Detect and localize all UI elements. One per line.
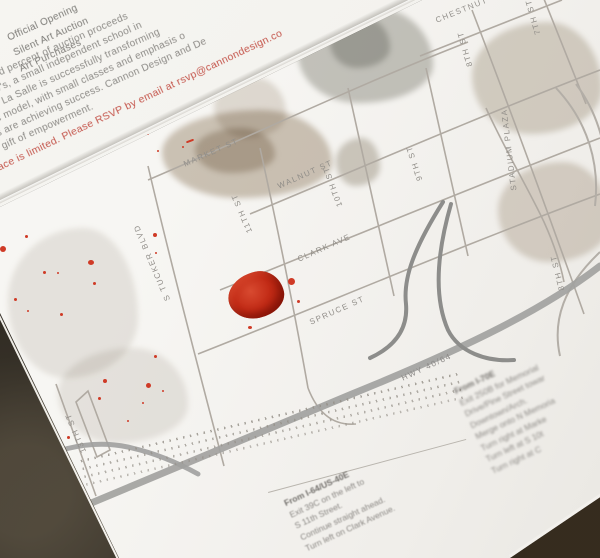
ink-splatter-dot bbox=[248, 326, 252, 329]
ink-splatter-dot bbox=[27, 310, 29, 312]
ink-splatter-dot bbox=[162, 390, 164, 392]
ink-splatter-dot bbox=[127, 420, 129, 422]
ink-splatter-dot bbox=[14, 298, 17, 301]
photo-of-letterpress-map-card: Official Opening Silent Art Auction Art … bbox=[0, 0, 600, 558]
ink-splatter-dot bbox=[0, 246, 6, 252]
ink-splatter-dot bbox=[288, 278, 295, 285]
ink-splatter-dot bbox=[103, 379, 107, 383]
ink-splatter-dot bbox=[57, 272, 59, 274]
ink-splatter-dot bbox=[25, 235, 28, 238]
ink-splatter-dot bbox=[182, 146, 184, 148]
ink-splatter-dot bbox=[155, 252, 157, 254]
ink-splatter-dot bbox=[60, 313, 63, 316]
ink-splatter-dot bbox=[88, 260, 94, 265]
ink-splatter-dot bbox=[153, 233, 157, 237]
ink-splatter-dot bbox=[93, 282, 96, 285]
ink-splatter-dot bbox=[297, 300, 300, 303]
ink-splatter-dot bbox=[142, 402, 144, 404]
ink-splatter-dot bbox=[157, 150, 159, 152]
ink-splatter-dot bbox=[98, 397, 101, 400]
ink-splatter-dot bbox=[43, 271, 46, 274]
ink-splatter-dot bbox=[154, 355, 157, 358]
ink-splatter-dot bbox=[67, 436, 70, 439]
ink-splatter-dot bbox=[146, 383, 151, 388]
